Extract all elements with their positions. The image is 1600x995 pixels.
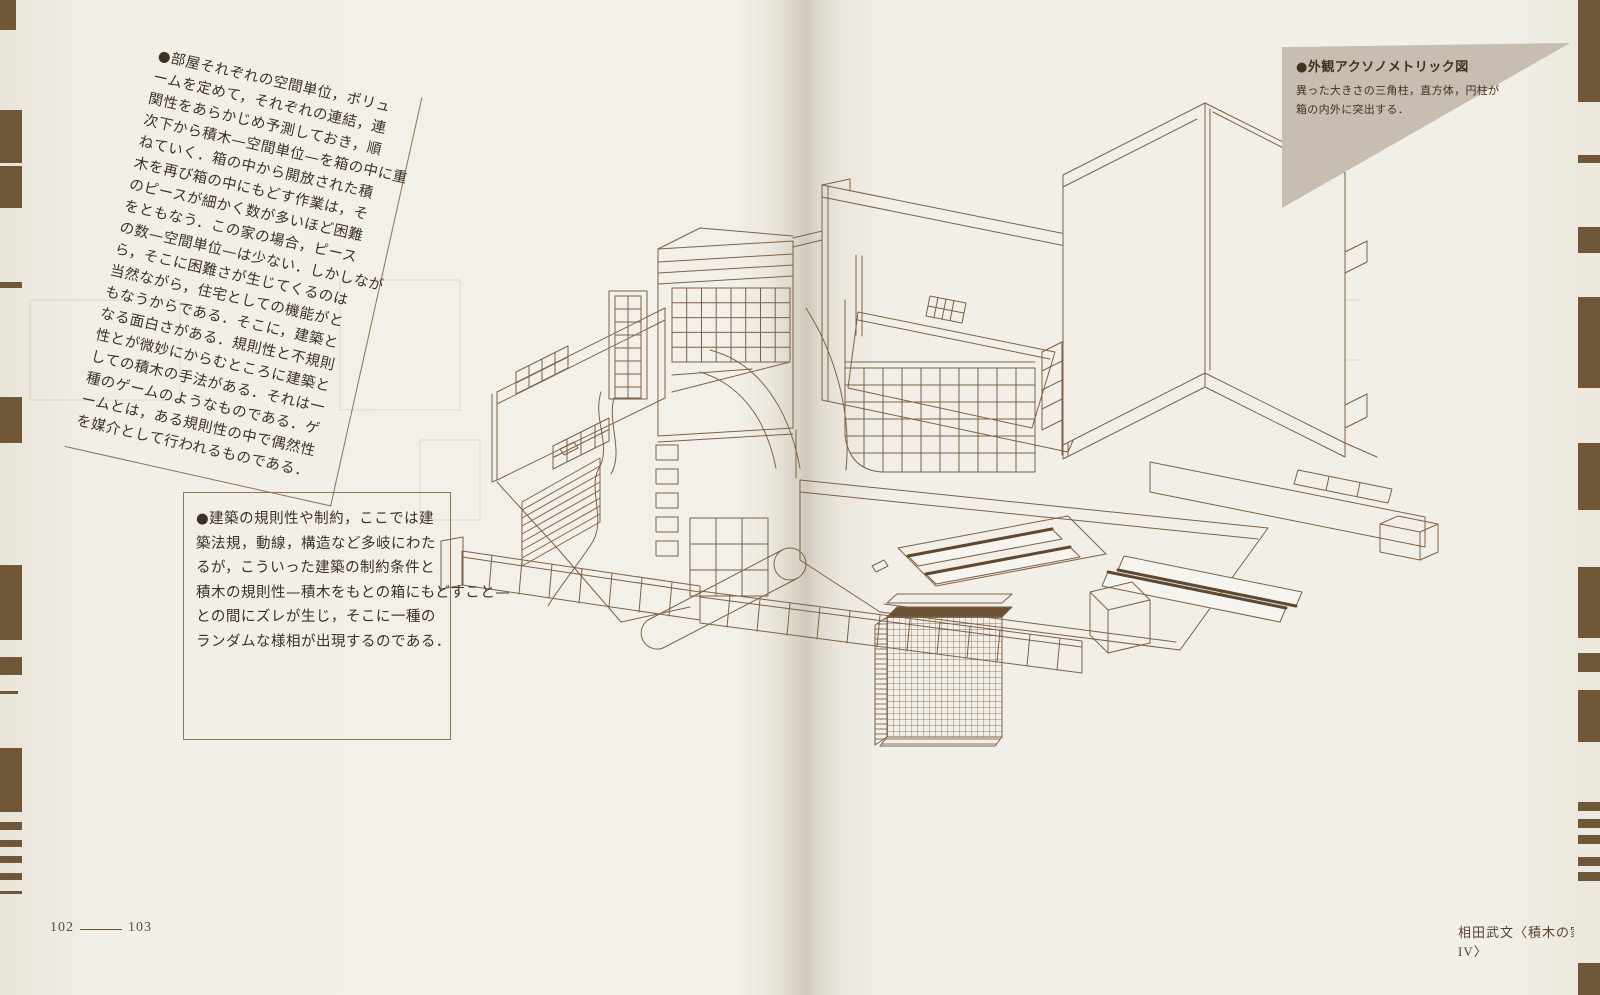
axon-skylights-left [898,516,1106,586]
figure-caption-line: 箱の内外に突出する． [1296,100,1526,119]
note-line: るが，こういった建築の制約条件と [196,556,444,581]
axon-right-wing [1150,443,1438,560]
axon-grid-wall [845,300,1035,472]
axon-curved-walls [700,231,847,478]
axon-mesh-cube [875,594,1012,746]
page-number-rule [80,929,122,930]
page-numbers: 102 103 [50,920,152,936]
axon-window-holes [656,445,678,556]
page-number-right: 103 [128,920,152,936]
boxed-note-block: ●建築の規則性や制約，ここでは建 築法規，動線，構造など多岐にわた るが，こうい… [183,492,451,740]
axon-grid-tower [658,228,793,442]
page-number-left: 102 [50,920,74,936]
note-line: との間にズレが生じ，そこに一種の [196,605,444,630]
book-spread-scan: { "colors":{ "paper":"#f2efe8", "drawing… [0,0,1600,995]
note-line: ランダムな様相が出現するのである． [196,630,444,655]
figure-caption-title: ●外観アクソノメトリック図 [1296,56,1526,75]
axon-skylights-right [1102,556,1302,622]
note-line: 築法規，動線，構造など多岐にわた [196,532,444,557]
axon-ladder-window [609,291,647,399]
axon-hatched-roof [522,458,600,566]
note-line: 積木の規則性—積木をもとの箱にもどすこと— [196,581,444,606]
axon-left-wall [441,308,690,622]
figure-caption-line: 異った大きさの三角柱，直方体，円柱が [1296,81,1526,100]
note-line: ●建築の規則性や制約，ここでは建 [196,507,444,532]
figure-caption: ●外観アクソノメトリック図 異った大きさの三角柱，直方体，円柱が 箱の内外に突出… [1296,56,1526,119]
